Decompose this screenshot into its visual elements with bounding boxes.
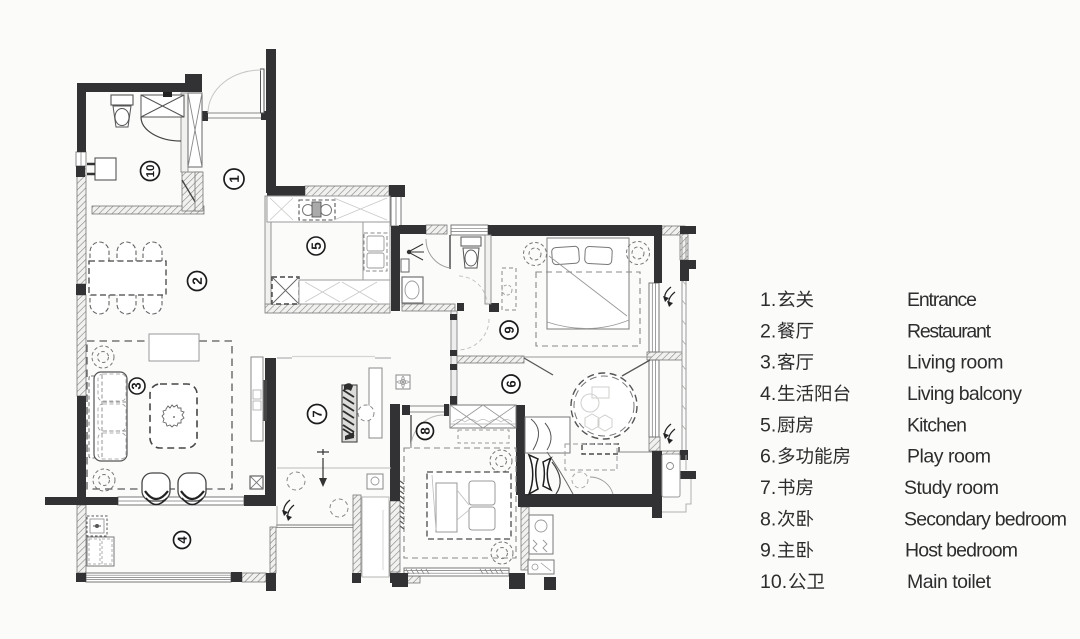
- svg-text:Entrance: Entrance: [907, 289, 977, 311]
- svg-text:Kitchen: Kitchen: [907, 414, 967, 436]
- svg-text:Living room: Living room: [907, 352, 1004, 374]
- svg-text:10.: 10.: [760, 571, 787, 593]
- svg-text:Secondary bedroom: Secondary bedroom: [904, 508, 1067, 530]
- svg-text:9.: 9.: [760, 540, 776, 562]
- svg-text:Study room: Study room: [904, 477, 999, 499]
- svg-text:4.: 4.: [760, 383, 776, 405]
- svg-text:8.: 8.: [760, 508, 776, 530]
- svg-text:Restaurant: Restaurant: [907, 320, 992, 342]
- svg-text:3.: 3.: [760, 352, 776, 374]
- svg-text:2.: 2.: [760, 320, 776, 342]
- svg-text:Host bedroom: Host bedroom: [905, 540, 1018, 562]
- svg-text:Main toilet: Main toilet: [907, 571, 992, 593]
- svg-text:Play room: Play room: [907, 446, 991, 468]
- svg-text:Living balcony: Living balcony: [907, 383, 1022, 405]
- svg-text:6.: 6.: [760, 446, 776, 468]
- svg-text:7.: 7.: [760, 477, 776, 499]
- svg-text:1.: 1.: [760, 289, 776, 311]
- svg-text:5.: 5.: [760, 414, 776, 436]
